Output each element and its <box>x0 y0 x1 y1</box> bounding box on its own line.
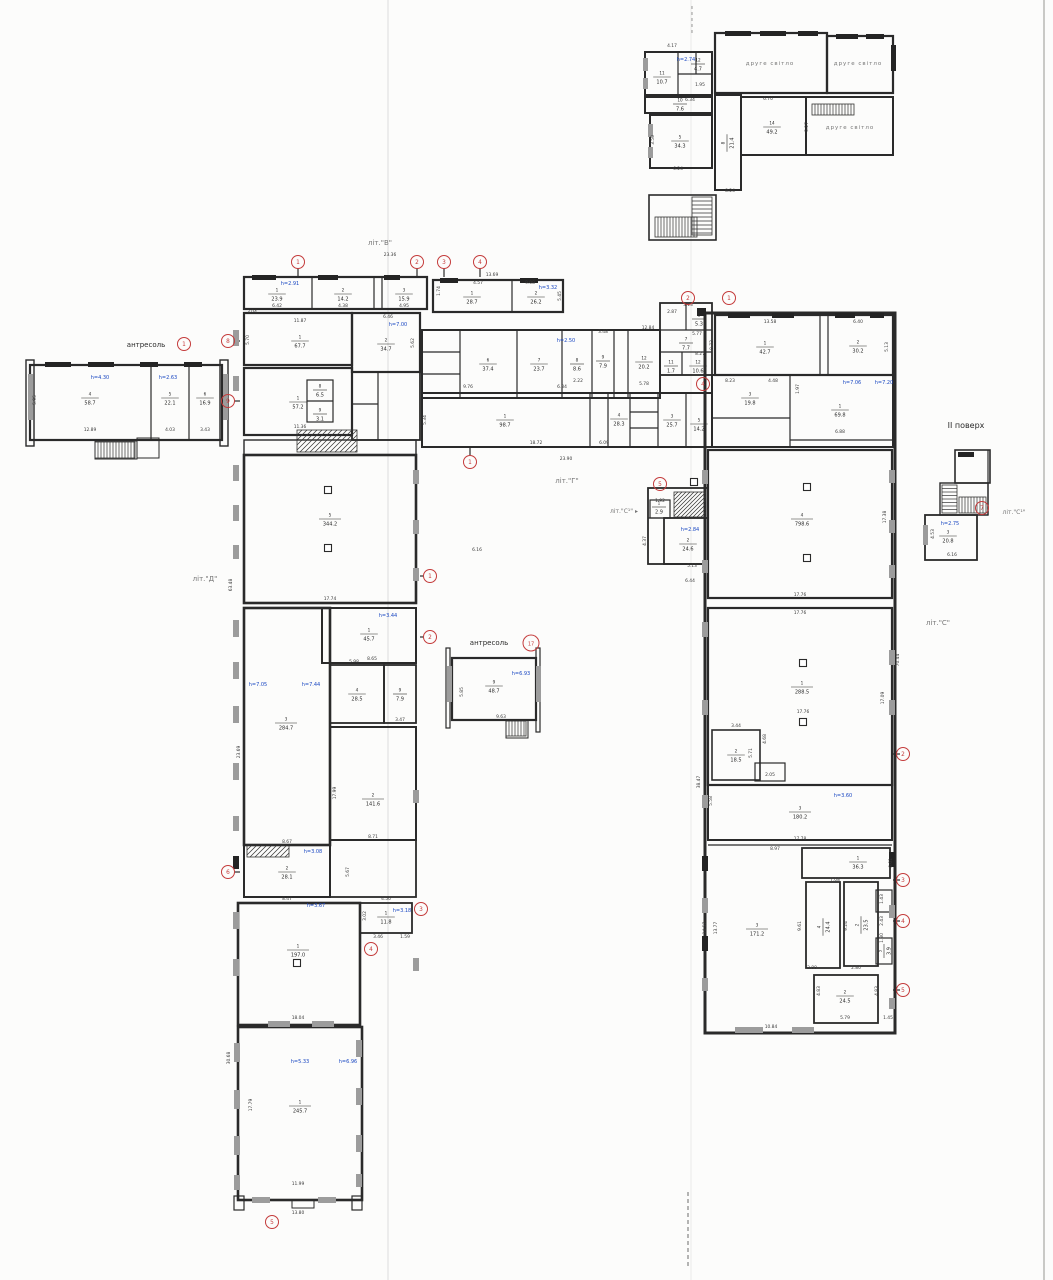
dim-text: 3.46 <box>373 934 383 940</box>
dim-text: 6.46 <box>383 314 393 320</box>
building-label: антресоль <box>470 639 508 647</box>
window-segment <box>233 545 239 559</box>
dim-text: 1.97 <box>795 384 801 394</box>
room-number: 1 <box>297 396 300 401</box>
dim-text: 11.99 <box>292 1181 305 1187</box>
room-area: 16.9 <box>199 401 210 407</box>
dim-text: 3.50 <box>650 135 656 145</box>
height-annotation: h=3.18 <box>393 908 412 914</box>
window-segment <box>702 700 708 715</box>
window-segment <box>447 666 452 702</box>
room-number: 8 <box>721 141 726 144</box>
dim-text: 9.08 <box>525 280 535 286</box>
dim-text: 4.48 <box>768 378 778 384</box>
room-number: 1 <box>471 291 474 296</box>
dim-text: 12.89 <box>84 427 97 433</box>
window-segment <box>702 856 708 871</box>
dim-text: 2.05 <box>765 772 775 778</box>
stair-hatch <box>812 104 854 115</box>
height-annotation: h=2.63 <box>159 375 178 381</box>
room-area: 23.7 <box>533 367 544 373</box>
dim-text: 5.67 <box>345 867 351 877</box>
room-number: 1 <box>698 313 701 318</box>
room-area: 24.5 <box>839 999 850 1005</box>
dim-text: 6.24 <box>673 166 683 172</box>
room-number: 2 <box>342 288 345 293</box>
room-area: 18.5 <box>730 758 741 764</box>
room-number: 1 <box>385 911 388 916</box>
room-area: 19.8 <box>744 401 755 407</box>
dim-text: 5.78 <box>639 381 649 387</box>
dim-text: 6.16 <box>472 547 482 553</box>
room-area: 22.1 <box>164 401 175 407</box>
height-annotation: h=6.93 <box>512 671 531 677</box>
axis-ref-number: 2 <box>686 296 690 302</box>
room-number: 3 <box>799 806 802 811</box>
room-number: 9 <box>319 408 322 413</box>
room-number: 2 <box>535 291 538 296</box>
room-number: 4 <box>356 688 359 693</box>
window-segment <box>866 34 884 39</box>
window-segment <box>702 936 708 951</box>
dim-text: 6.44 <box>685 578 695 584</box>
dim-text: 9.76 <box>463 384 473 390</box>
room-number: 12 <box>695 58 701 63</box>
room-area: 20.2 <box>638 365 649 371</box>
dim-text: 18.72 <box>530 440 543 446</box>
dim-text: 1.59 <box>400 934 410 940</box>
dim-text: 18.04 <box>292 1015 305 1021</box>
room-number: 2 <box>687 538 690 543</box>
dim-text: 13.77 <box>713 922 719 935</box>
dim-text: 2.87 <box>667 309 677 315</box>
height-annotation: h=6.96 <box>339 1059 358 1065</box>
building-label: літ."С¹" ▸ <box>610 508 638 515</box>
dim-text: 5.70 <box>245 335 251 345</box>
dim-text: 5.95 <box>32 395 38 405</box>
axis-ref-number: 4 <box>369 947 373 953</box>
room-area: 15.9 <box>398 297 409 303</box>
height-annotation: h=4.30 <box>91 375 110 381</box>
dim-text: 6.16 <box>947 552 957 558</box>
dim-text: 2.43 <box>879 916 885 926</box>
room-area: 28.3 <box>613 422 624 428</box>
height-annotation: h=2.84 <box>681 527 700 533</box>
room-number: 10 <box>677 98 683 103</box>
window-segment <box>648 124 653 137</box>
room-area: 245.7 <box>293 1109 307 1115</box>
dim-text: 17.76 <box>794 610 807 616</box>
window-segment <box>356 1174 362 1187</box>
room-area: 344.2 <box>323 522 337 528</box>
axis-ref-number: 5 <box>901 988 905 994</box>
dim-text: 17.74 <box>324 596 337 602</box>
building-label: літ."С" <box>926 619 950 627</box>
window-segment <box>643 58 648 71</box>
window-segment <box>702 622 708 637</box>
room-number: 1 <box>801 681 804 686</box>
window-segment <box>356 1088 362 1105</box>
dim-text: 38.47 <box>696 776 702 789</box>
column-marker <box>294 960 301 967</box>
column-marker <box>691 479 698 486</box>
room-number: 4 <box>817 925 822 928</box>
room-area: 20.8 <box>942 539 953 545</box>
dim-text: 6.70 <box>763 96 773 102</box>
room-area: 48.7 <box>488 689 499 695</box>
room-area: 14.2 <box>693 427 704 433</box>
window-segment <box>889 565 895 578</box>
dim-text: 63.48 <box>228 579 234 592</box>
room-area: 5.3 <box>695 322 703 328</box>
dim-text: 4.53 <box>930 529 936 539</box>
room-area: 25.7 <box>666 423 677 429</box>
room-number: 1 <box>299 335 302 340</box>
dim-text: 4.95 <box>399 303 409 309</box>
window-segment <box>318 275 338 280</box>
dim-text: 11.36 <box>294 424 307 430</box>
room-number: 1 <box>299 1100 302 1105</box>
window-segment <box>356 1135 362 1152</box>
window-segment <box>728 313 750 318</box>
room-number: 7 <box>538 358 541 363</box>
dim-text: 1.95 <box>695 82 705 88</box>
room-area: 10.6 <box>692 369 703 375</box>
room-number: 1 <box>297 944 300 949</box>
column-marker <box>800 719 807 726</box>
dim-text: 4.17 <box>667 43 677 49</box>
axis-ref-number: 1 <box>296 260 300 266</box>
dim-text: 3.02 <box>362 911 368 921</box>
window-segment <box>702 978 708 991</box>
dim-text: 6.42 <box>272 303 282 309</box>
room-number: 5 <box>679 135 682 140</box>
height-annotation: h=7.00 <box>389 322 408 328</box>
room-area: 1.7 <box>667 369 675 375</box>
dim-text: 8.23 <box>725 378 735 384</box>
room-area: 23.9 <box>271 297 282 303</box>
room-number: 2 <box>372 793 375 798</box>
dim-text: 17.79 <box>248 1099 254 1112</box>
dim-text: 4.57 <box>473 280 483 286</box>
room-area: 67.7 <box>294 344 305 350</box>
dim-text: 1.45 <box>883 1015 893 1021</box>
room-number: 9 <box>493 680 496 685</box>
window-segment <box>702 470 708 484</box>
window-segment <box>384 275 400 280</box>
window-segment <box>223 374 228 420</box>
dim-text: 10.84 <box>765 1024 778 1030</box>
room-area: 8.6 <box>573 367 581 373</box>
axis-ref-number: 3 <box>901 878 905 884</box>
window-segment <box>836 34 858 39</box>
dim-text: 9.61 <box>797 921 803 931</box>
axis-ref-number: 7 <box>980 506 984 512</box>
room-area: 7.9 <box>396 697 404 703</box>
window-segment <box>252 1197 270 1203</box>
height-annotation: h=2.50 <box>557 338 576 344</box>
room-number: 1 <box>764 341 767 346</box>
room-area: 141.6 <box>366 802 380 808</box>
dim-text: 5.71 <box>748 748 754 758</box>
window-segment <box>268 1021 290 1027</box>
window-segment <box>413 470 419 484</box>
axis-ref-number: 9 <box>226 399 230 405</box>
axis-ref-number: 5 <box>658 482 662 488</box>
room-area: 98.7 <box>499 423 510 429</box>
room-number: 4 <box>801 513 804 518</box>
room-area: 7.9 <box>599 364 607 370</box>
window-segment <box>233 662 239 679</box>
dim-text: 4.37 <box>642 536 648 546</box>
axis-ref-number: 8 <box>226 339 230 345</box>
room-number: 5 <box>878 949 883 952</box>
dim-text: 9.24 <box>843 921 849 931</box>
room-number: 6 <box>487 358 490 363</box>
room-number: 4 <box>89 392 92 397</box>
building-label: літ."С¹" <box>1002 509 1025 516</box>
building-label: антресоль <box>127 341 165 349</box>
axis-ref-number: 1 <box>182 342 186 348</box>
window-segment <box>702 795 708 808</box>
room-number: 5 <box>698 418 701 423</box>
dim-text: 8.65 <box>367 656 377 662</box>
window-segment <box>234 1175 240 1190</box>
window-segment <box>233 620 239 637</box>
column-marker <box>800 660 807 667</box>
window-segment <box>356 1040 362 1057</box>
dim-text: 12.84 <box>642 325 655 331</box>
axis-ref-number: 1 <box>468 460 472 466</box>
room-number: 5 <box>329 513 332 518</box>
room-number: 1 <box>276 288 279 293</box>
room-area: 30.2 <box>852 349 863 355</box>
dim-text: 5.85 <box>459 687 465 697</box>
window-segment <box>233 706 239 723</box>
dim-text: 2.88 <box>807 965 817 971</box>
room-number: 7 <box>685 337 688 342</box>
room-area: 36.3 <box>852 865 863 871</box>
height-annotation: h=2.74 <box>677 57 696 63</box>
building-label: друге світло <box>834 61 882 67</box>
room-area: 34.7 <box>380 347 391 353</box>
dim-text: 8.47 <box>282 896 292 902</box>
window-segment <box>760 31 786 36</box>
dim-text: 30.68 <box>226 1052 232 1065</box>
dim-text: 6.88 <box>835 429 845 435</box>
room-number: 14 <box>769 121 775 126</box>
room-number: 11 <box>659 71 665 76</box>
dim-text: 17.78 <box>794 836 807 842</box>
window-segment <box>536 666 541 702</box>
dim-text: 5.34 <box>422 415 428 425</box>
dim-text: 3.47 <box>395 717 405 723</box>
window-segment <box>233 816 239 831</box>
dim-text: 11.87 <box>294 318 307 324</box>
room-area: 49.2 <box>766 130 777 136</box>
height-annotation: h=2.75 <box>941 521 960 527</box>
window-segment <box>233 505 239 521</box>
room-area: 28.7 <box>466 300 477 306</box>
dim-text: 9.63 <box>496 714 506 720</box>
room-number: 2 <box>735 749 738 754</box>
window-segment <box>184 362 202 367</box>
dim-text: 5.79 <box>840 1015 850 1021</box>
column-marker <box>325 487 332 494</box>
window-segment <box>252 275 276 280</box>
building-label: друге світло <box>826 125 874 131</box>
column-marker <box>804 555 811 562</box>
room-area: 45.7 <box>363 637 374 643</box>
window-segment <box>140 362 158 367</box>
room-area: 58.7 <box>84 401 95 407</box>
room-number: 3 <box>947 530 950 535</box>
dim-text: 3.43 <box>200 427 210 433</box>
room-area: 24.6 <box>682 547 693 553</box>
dim-text: 17.76 <box>797 709 810 715</box>
dim-text: 7.08 <box>830 877 840 883</box>
room-number: 3 <box>671 414 674 419</box>
height-annotation: h=7.44 <box>302 682 321 688</box>
window-segment <box>413 958 419 971</box>
room-area: 171.2 <box>750 932 764 938</box>
height-annotation: h=3.67 <box>307 903 326 909</box>
window-segment <box>413 520 419 534</box>
room-number: 2 <box>855 923 860 926</box>
dim-text: 6.84 <box>557 384 567 390</box>
room-number: 1 <box>504 414 507 419</box>
dim-text: 5.98 <box>349 659 359 665</box>
dim-text: 13.80 <box>292 1210 305 1216</box>
axis-ref-number: 3 <box>442 260 446 266</box>
room-area: 798.6 <box>795 522 809 528</box>
window-segment <box>702 898 708 913</box>
dim-text: 2.22 <box>573 378 583 384</box>
room-area: 197.0 <box>291 953 305 959</box>
room-number: 9 <box>399 688 402 693</box>
room-number: 3 <box>749 392 752 397</box>
window-segment <box>870 313 884 318</box>
axis-ref-number: 2 <box>901 752 905 758</box>
window-segment <box>889 700 895 715</box>
dim-text: 4.50 <box>381 896 391 902</box>
room-area: 288.5 <box>795 690 809 696</box>
room-area: 28.5 <box>351 697 362 703</box>
dim-text: 8.97 <box>770 846 780 852</box>
dim-text: 5.13 <box>687 563 697 569</box>
room-number: 1 <box>857 856 860 861</box>
room-number: 5 <box>169 392 172 397</box>
dim-text: 4.83 <box>874 986 880 996</box>
window-segment <box>233 959 239 976</box>
room-number: 8 <box>576 358 579 363</box>
window-segment <box>889 650 895 665</box>
axis-ref-number: 2 <box>415 260 419 266</box>
axis-ref-number: 1 <box>727 296 731 302</box>
dim-text: 4.83 <box>816 986 822 996</box>
room-number: 2 <box>385 338 388 343</box>
room-area: 7.6 <box>676 107 684 113</box>
room-area: 10.7 <box>656 80 667 86</box>
axis-ref-number: 5 <box>270 1220 274 1226</box>
dim-text: 5.58 <box>708 796 714 806</box>
window-segment <box>88 362 114 367</box>
dim-text: 17.76 <box>794 592 807 598</box>
building-label: літ."Д" <box>193 575 218 583</box>
dim-text: 8.71 <box>368 834 378 840</box>
window-segment <box>958 452 974 457</box>
window-segment <box>923 525 928 545</box>
dim-text: 1.74 <box>436 286 442 296</box>
dim-text: 17.99 <box>332 787 338 800</box>
dim-text: 23.90 <box>560 456 573 462</box>
axis-ref-number: 4 <box>701 382 705 388</box>
height-annotation: h=7.20 <box>875 380 894 386</box>
dim-text: 3.04 <box>247 309 257 315</box>
dim-text: 8.24 <box>725 188 735 194</box>
dim-text: 4.38 <box>338 303 348 309</box>
room-area: 11.8 <box>380 920 391 926</box>
window-segment <box>234 1043 240 1062</box>
dim-text: 13.69 <box>486 272 499 278</box>
height-annotation: h=7.06 <box>843 380 862 386</box>
window-segment <box>735 1027 763 1033</box>
dim-text: 5.27 <box>804 122 810 132</box>
height-annotation: h=3.32 <box>539 285 558 291</box>
window-segment <box>772 313 794 318</box>
room-area: 284.7 <box>279 726 293 732</box>
room-number: 12 <box>695 360 701 365</box>
room-area: 24.4 <box>826 921 832 932</box>
room-number: 6 <box>204 392 207 397</box>
height-annotation: h=3.60 <box>834 793 853 799</box>
room-area: 26.2 <box>530 300 541 306</box>
room-number: 1 <box>368 628 371 633</box>
dim-text: 5.13 <box>884 342 890 352</box>
axis-ref-number: 1 <box>428 574 432 580</box>
room-number: 12 <box>641 356 647 361</box>
axis-ref-number: 2 <box>428 635 432 641</box>
room-number: 8 <box>319 384 322 389</box>
room-number: 11 <box>668 360 674 365</box>
window-segment <box>889 470 895 483</box>
room-number: 1 <box>839 404 842 409</box>
room-area: 4.7 <box>694 67 702 73</box>
dim-text: 23.69 <box>236 746 242 759</box>
window-segment <box>233 856 239 869</box>
dim-text: 6.01 <box>888 858 894 868</box>
room-area: 14.2 <box>337 297 348 303</box>
column-marker <box>804 484 811 491</box>
room-number: 9 <box>602 355 605 360</box>
room-number: 2 <box>286 866 289 871</box>
window-segment <box>233 763 239 780</box>
dim-text: 23.36 <box>384 252 397 258</box>
window-segment <box>725 31 751 36</box>
room-area: 34.3 <box>674 144 685 150</box>
height-annotation: h=3.08 <box>304 849 323 855</box>
dim-text: 3.48 <box>598 329 608 335</box>
dim-text: 14.57 <box>702 922 708 935</box>
scanned-floorplan-page: 458.7522.1616.9123.9214.2315.9128.7226.2… <box>0 0 1053 1280</box>
window-segment <box>413 790 419 803</box>
axis-ref-number: 17 <box>528 642 534 648</box>
window-segment <box>889 905 895 918</box>
dim-text: 1.80 <box>879 933 885 943</box>
room-number: 2 <box>857 340 860 345</box>
window-segment <box>440 278 458 283</box>
dim-text: 4.03 <box>165 427 175 433</box>
